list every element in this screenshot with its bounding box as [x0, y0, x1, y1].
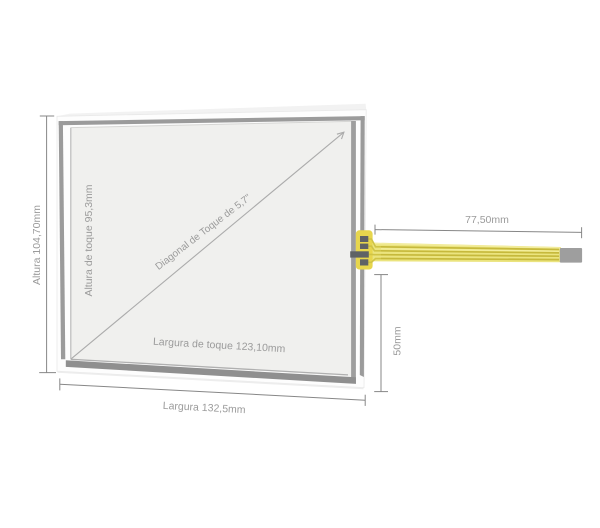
svg-text:Altura de toque 95,3mm: Altura de toque 95,3mm	[83, 184, 95, 296]
svg-text:77,50mm: 77,50mm	[465, 214, 509, 226]
svg-text:50mm: 50mm	[392, 326, 404, 355]
svg-text:Altura 104,70mm: Altura 104,70mm	[31, 205, 43, 285]
